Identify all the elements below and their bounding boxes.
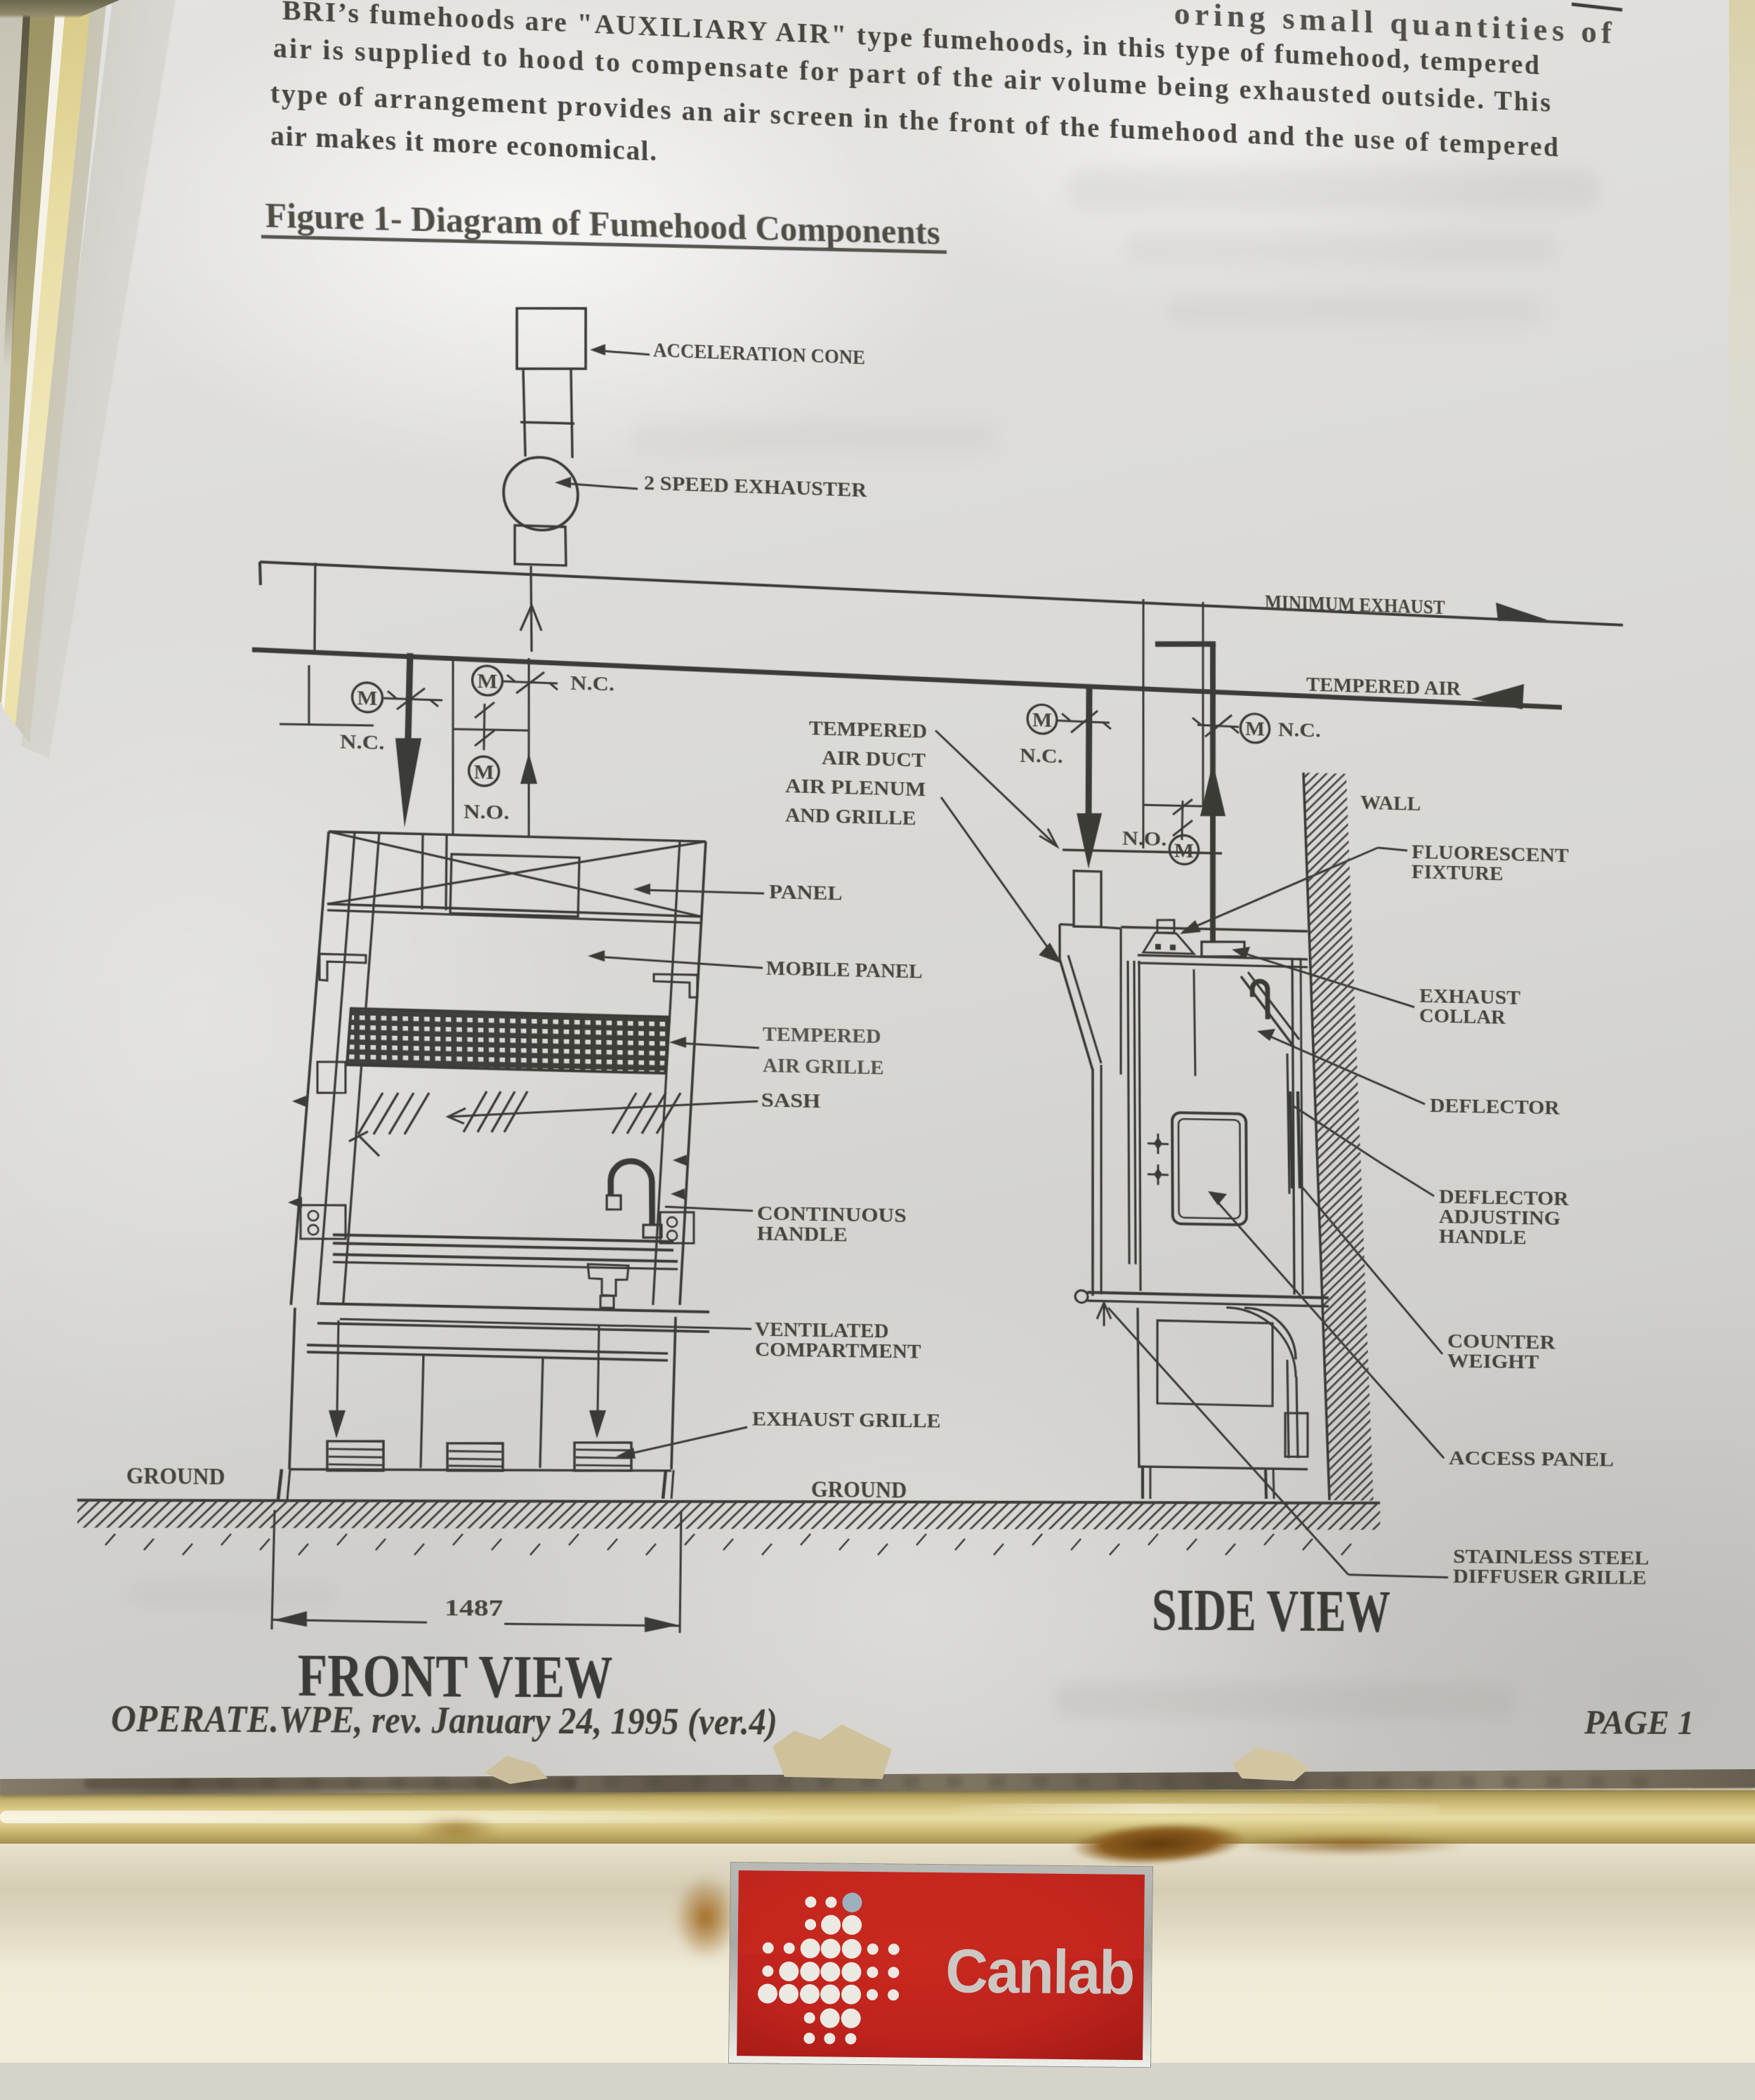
svg-text:Canlab: Canlab	[945, 1936, 1134, 2007]
